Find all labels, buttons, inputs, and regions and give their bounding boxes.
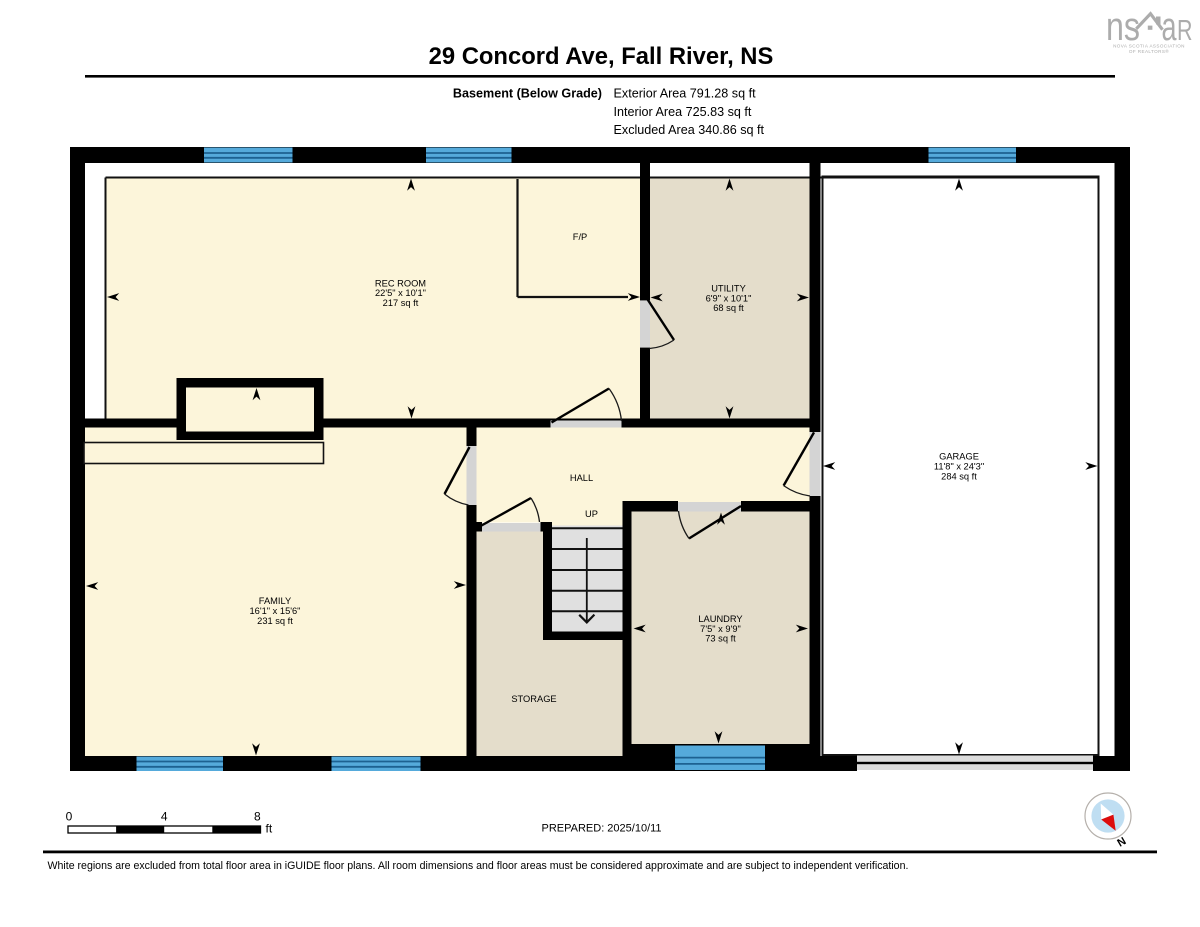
svg-text:4: 4 bbox=[161, 810, 168, 824]
svg-text:29 Concord Ave, Fall River, NS: 29 Concord Ave, Fall River, NS bbox=[429, 43, 774, 70]
svg-text:22'5" x 10'1": 22'5" x 10'1" bbox=[375, 288, 426, 298]
svg-text:PREPARED: 2025/10/11: PREPARED: 2025/10/11 bbox=[542, 823, 662, 835]
svg-text:68 sq ft: 68 sq ft bbox=[713, 303, 744, 313]
svg-text:GARAGE: GARAGE bbox=[939, 452, 979, 462]
svg-text:a: a bbox=[1162, 5, 1178, 49]
svg-text:Interior Area 725.83 sq ft: Interior Area 725.83 sq ft bbox=[614, 105, 752, 119]
svg-text:FAMILY: FAMILY bbox=[259, 596, 291, 606]
svg-text:UP: UP bbox=[585, 509, 598, 519]
svg-text:231 sq ft: 231 sq ft bbox=[257, 616, 293, 626]
svg-text:Basement (Below Grade): Basement (Below Grade) bbox=[453, 87, 602, 101]
svg-text:F/P: F/P bbox=[573, 232, 587, 242]
svg-text:STORAGE: STORAGE bbox=[511, 694, 556, 704]
svg-text:ns: ns bbox=[1106, 5, 1140, 49]
svg-text:284 sq ft: 284 sq ft bbox=[941, 472, 977, 482]
svg-text:LAUNDRY: LAUNDRY bbox=[698, 614, 742, 624]
svg-text:16'1" x 15'6": 16'1" x 15'6" bbox=[250, 606, 301, 616]
svg-text:HALL: HALL bbox=[570, 473, 593, 483]
svg-text:REC ROOM: REC ROOM bbox=[375, 278, 426, 288]
svg-text:7'5" x 9'9": 7'5" x 9'9" bbox=[700, 624, 741, 634]
svg-text:OF REALTORS®: OF REALTORS® bbox=[1129, 48, 1169, 54]
svg-text:ft: ft bbox=[266, 822, 273, 836]
svg-text:6'9" x 10'1": 6'9" x 10'1" bbox=[706, 293, 752, 303]
svg-text:73 sq ft: 73 sq ft bbox=[705, 634, 736, 644]
svg-text:217 sq ft: 217 sq ft bbox=[383, 298, 419, 308]
svg-text:R: R bbox=[1177, 15, 1193, 47]
svg-text:11'8" x 24'3": 11'8" x 24'3" bbox=[934, 462, 984, 472]
svg-text:UTILITY: UTILITY bbox=[711, 283, 746, 293]
svg-text:8: 8 bbox=[254, 810, 261, 824]
svg-text:0: 0 bbox=[66, 810, 73, 824]
svg-text:NOVA SCOTIA ASSOCIATION: NOVA SCOTIA ASSOCIATION bbox=[1113, 44, 1185, 49]
svg-text:Excluded Area 340.86 sq ft: Excluded Area 340.86 sq ft bbox=[614, 123, 765, 137]
svg-text:Exterior Area 791.28 sq ft: Exterior Area 791.28 sq ft bbox=[614, 87, 757, 101]
svg-text:White regions are excluded fro: White regions are excluded from total fl… bbox=[48, 860, 909, 872]
